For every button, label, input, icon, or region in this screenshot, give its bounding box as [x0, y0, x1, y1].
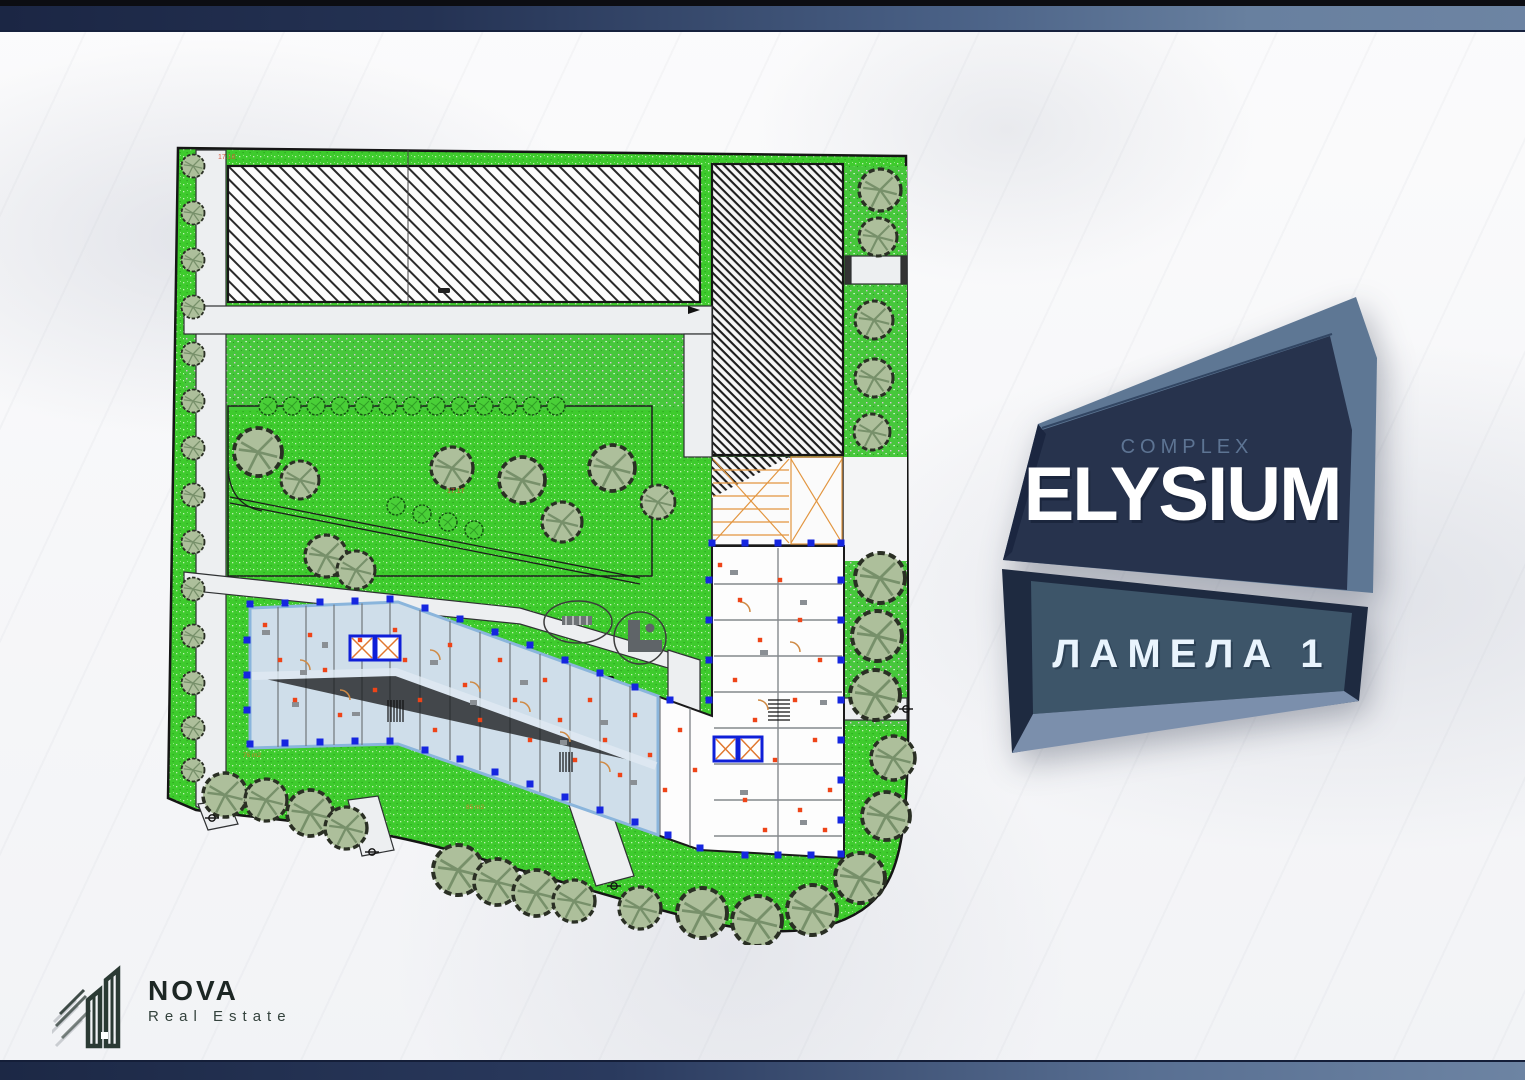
- area-label: 76 m2: [243, 752, 261, 759]
- nova-logo-icon: [52, 952, 144, 1056]
- badge-title: ELYSIUM: [1024, 452, 1341, 537]
- site-plan: 17.16 17.17 76 m2 85 m2: [160, 135, 920, 945]
- logo-notch: [101, 1032, 108, 1039]
- logo-tagline: Real Estate: [148, 1006, 292, 1028]
- area-label: 85 m2: [466, 804, 484, 811]
- logo-building-lines: [56, 970, 118, 1046]
- nova-logo: NOVA Real Estate: [52, 952, 352, 1067]
- brochure-page: 17.16 17.17 76 m2 85 m2 COMPLEX ELYSIUM …: [0, 0, 1525, 1080]
- badge-sublabel: ЛАМЕЛА 1: [1052, 632, 1331, 676]
- lot-number: 17.17: [447, 488, 465, 495]
- logo-name: NOVA: [148, 976, 292, 1006]
- badge-lower-panel: ЛАМЕЛА 1 ЛАМЕЛА 1: [1002, 569, 1368, 753]
- top-accent-bar: [0, 0, 1525, 32]
- lot-number: 17.16: [218, 154, 236, 161]
- badge-upper-panel: COMPLEX ELYSIUM ELYSIUM: [1003, 297, 1377, 593]
- badge: COMPLEX ELYSIUM ELYSIUM ЛАМЕЛА 1 ЛАМЕЛА …: [985, 285, 1405, 765]
